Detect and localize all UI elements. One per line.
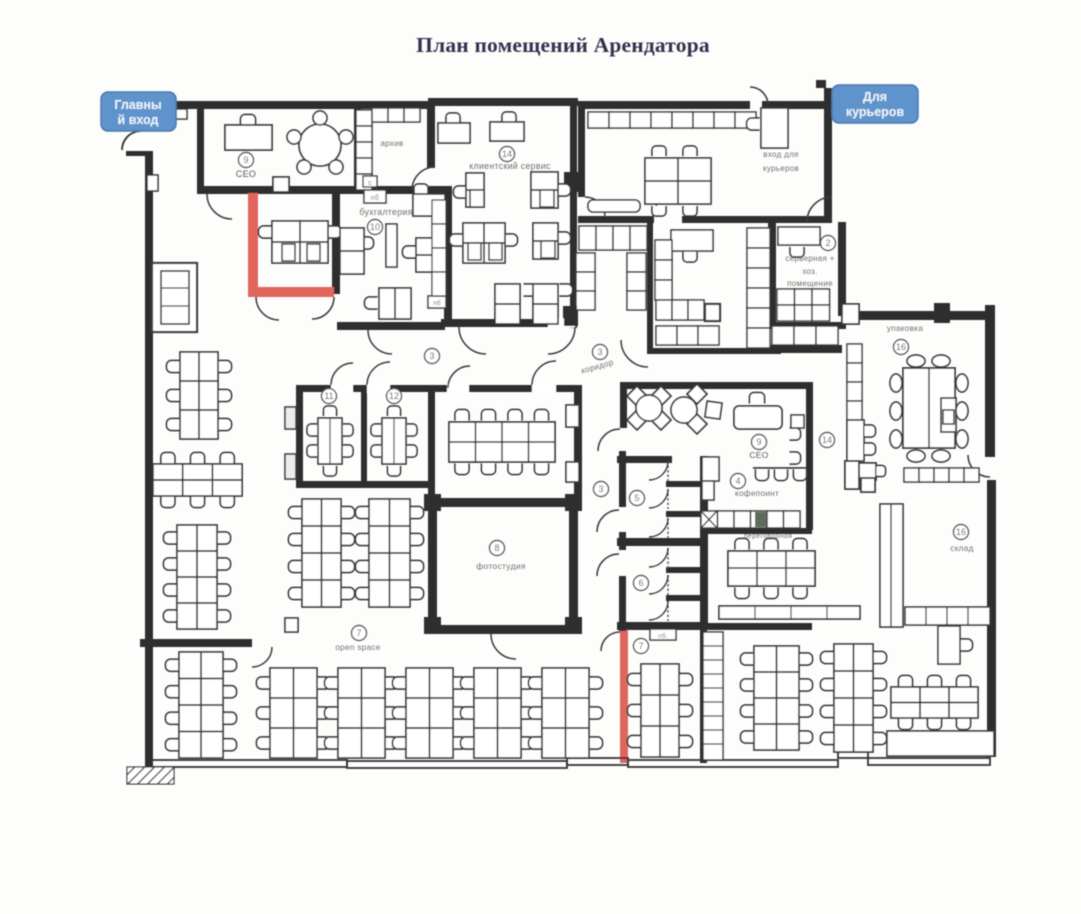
- svg-text:11: 11: [324, 391, 333, 401]
- svg-text:архив: архив: [380, 139, 403, 148]
- svg-text:CEO: CEO: [749, 450, 768, 460]
- svg-text:хоз.: хоз.: [802, 267, 817, 276]
- svg-text:фотостудия: фотостудия: [476, 561, 526, 571]
- svg-text:План помещений Арендатора: План помещений Арендатора: [416, 33, 710, 57]
- svg-text:курьеров: курьеров: [846, 105, 905, 119]
- svg-text:7: 7: [356, 628, 361, 638]
- svg-text:3: 3: [429, 351, 434, 361]
- svg-text:бухгалтерия: бухгалтерия: [359, 207, 412, 217]
- svg-text:14: 14: [822, 435, 832, 445]
- svg-text:с: с: [368, 180, 372, 187]
- svg-text:6: 6: [638, 578, 643, 588]
- svg-text:помещение: помещение: [787, 279, 833, 288]
- svg-text:3: 3: [598, 484, 603, 494]
- svg-text:7: 7: [638, 641, 643, 651]
- svg-text:16: 16: [956, 527, 966, 537]
- svg-text:5: 5: [634, 493, 639, 503]
- svg-text:12: 12: [389, 391, 399, 401]
- svg-text:кофепоинт: кофепоинт: [735, 489, 779, 498]
- svg-text:упаковка: упаковка: [887, 324, 924, 333]
- svg-text:8: 8: [494, 543, 499, 553]
- svg-text:4: 4: [735, 476, 740, 486]
- svg-text:клиентский сервис: клиентский сервис: [469, 161, 551, 171]
- svg-text:склад: склад: [950, 544, 973, 553]
- svg-text:9: 9: [243, 155, 248, 165]
- svg-text:пб: пб: [433, 299, 441, 307]
- svg-text:й вход: й вход: [118, 113, 159, 127]
- svg-text:2: 2: [825, 238, 830, 248]
- svg-text:16: 16: [896, 342, 906, 352]
- svg-text:Главны: Главны: [114, 98, 161, 112]
- svg-text:CEO: CEO: [236, 169, 256, 179]
- svg-text:пб.: пб.: [658, 632, 668, 640]
- svg-text:9: 9: [756, 437, 761, 447]
- svg-text:open space: open space: [335, 643, 380, 652]
- svg-text:курьеров: курьеров: [763, 164, 799, 173]
- svg-text:вход для: вход для: [763, 150, 798, 159]
- svg-text:10: 10: [370, 222, 380, 232]
- svg-text:Для: Для: [863, 90, 887, 104]
- svg-text:пб: пб: [371, 194, 379, 202]
- svg-text:3: 3: [597, 347, 602, 357]
- svg-text:14: 14: [502, 149, 512, 159]
